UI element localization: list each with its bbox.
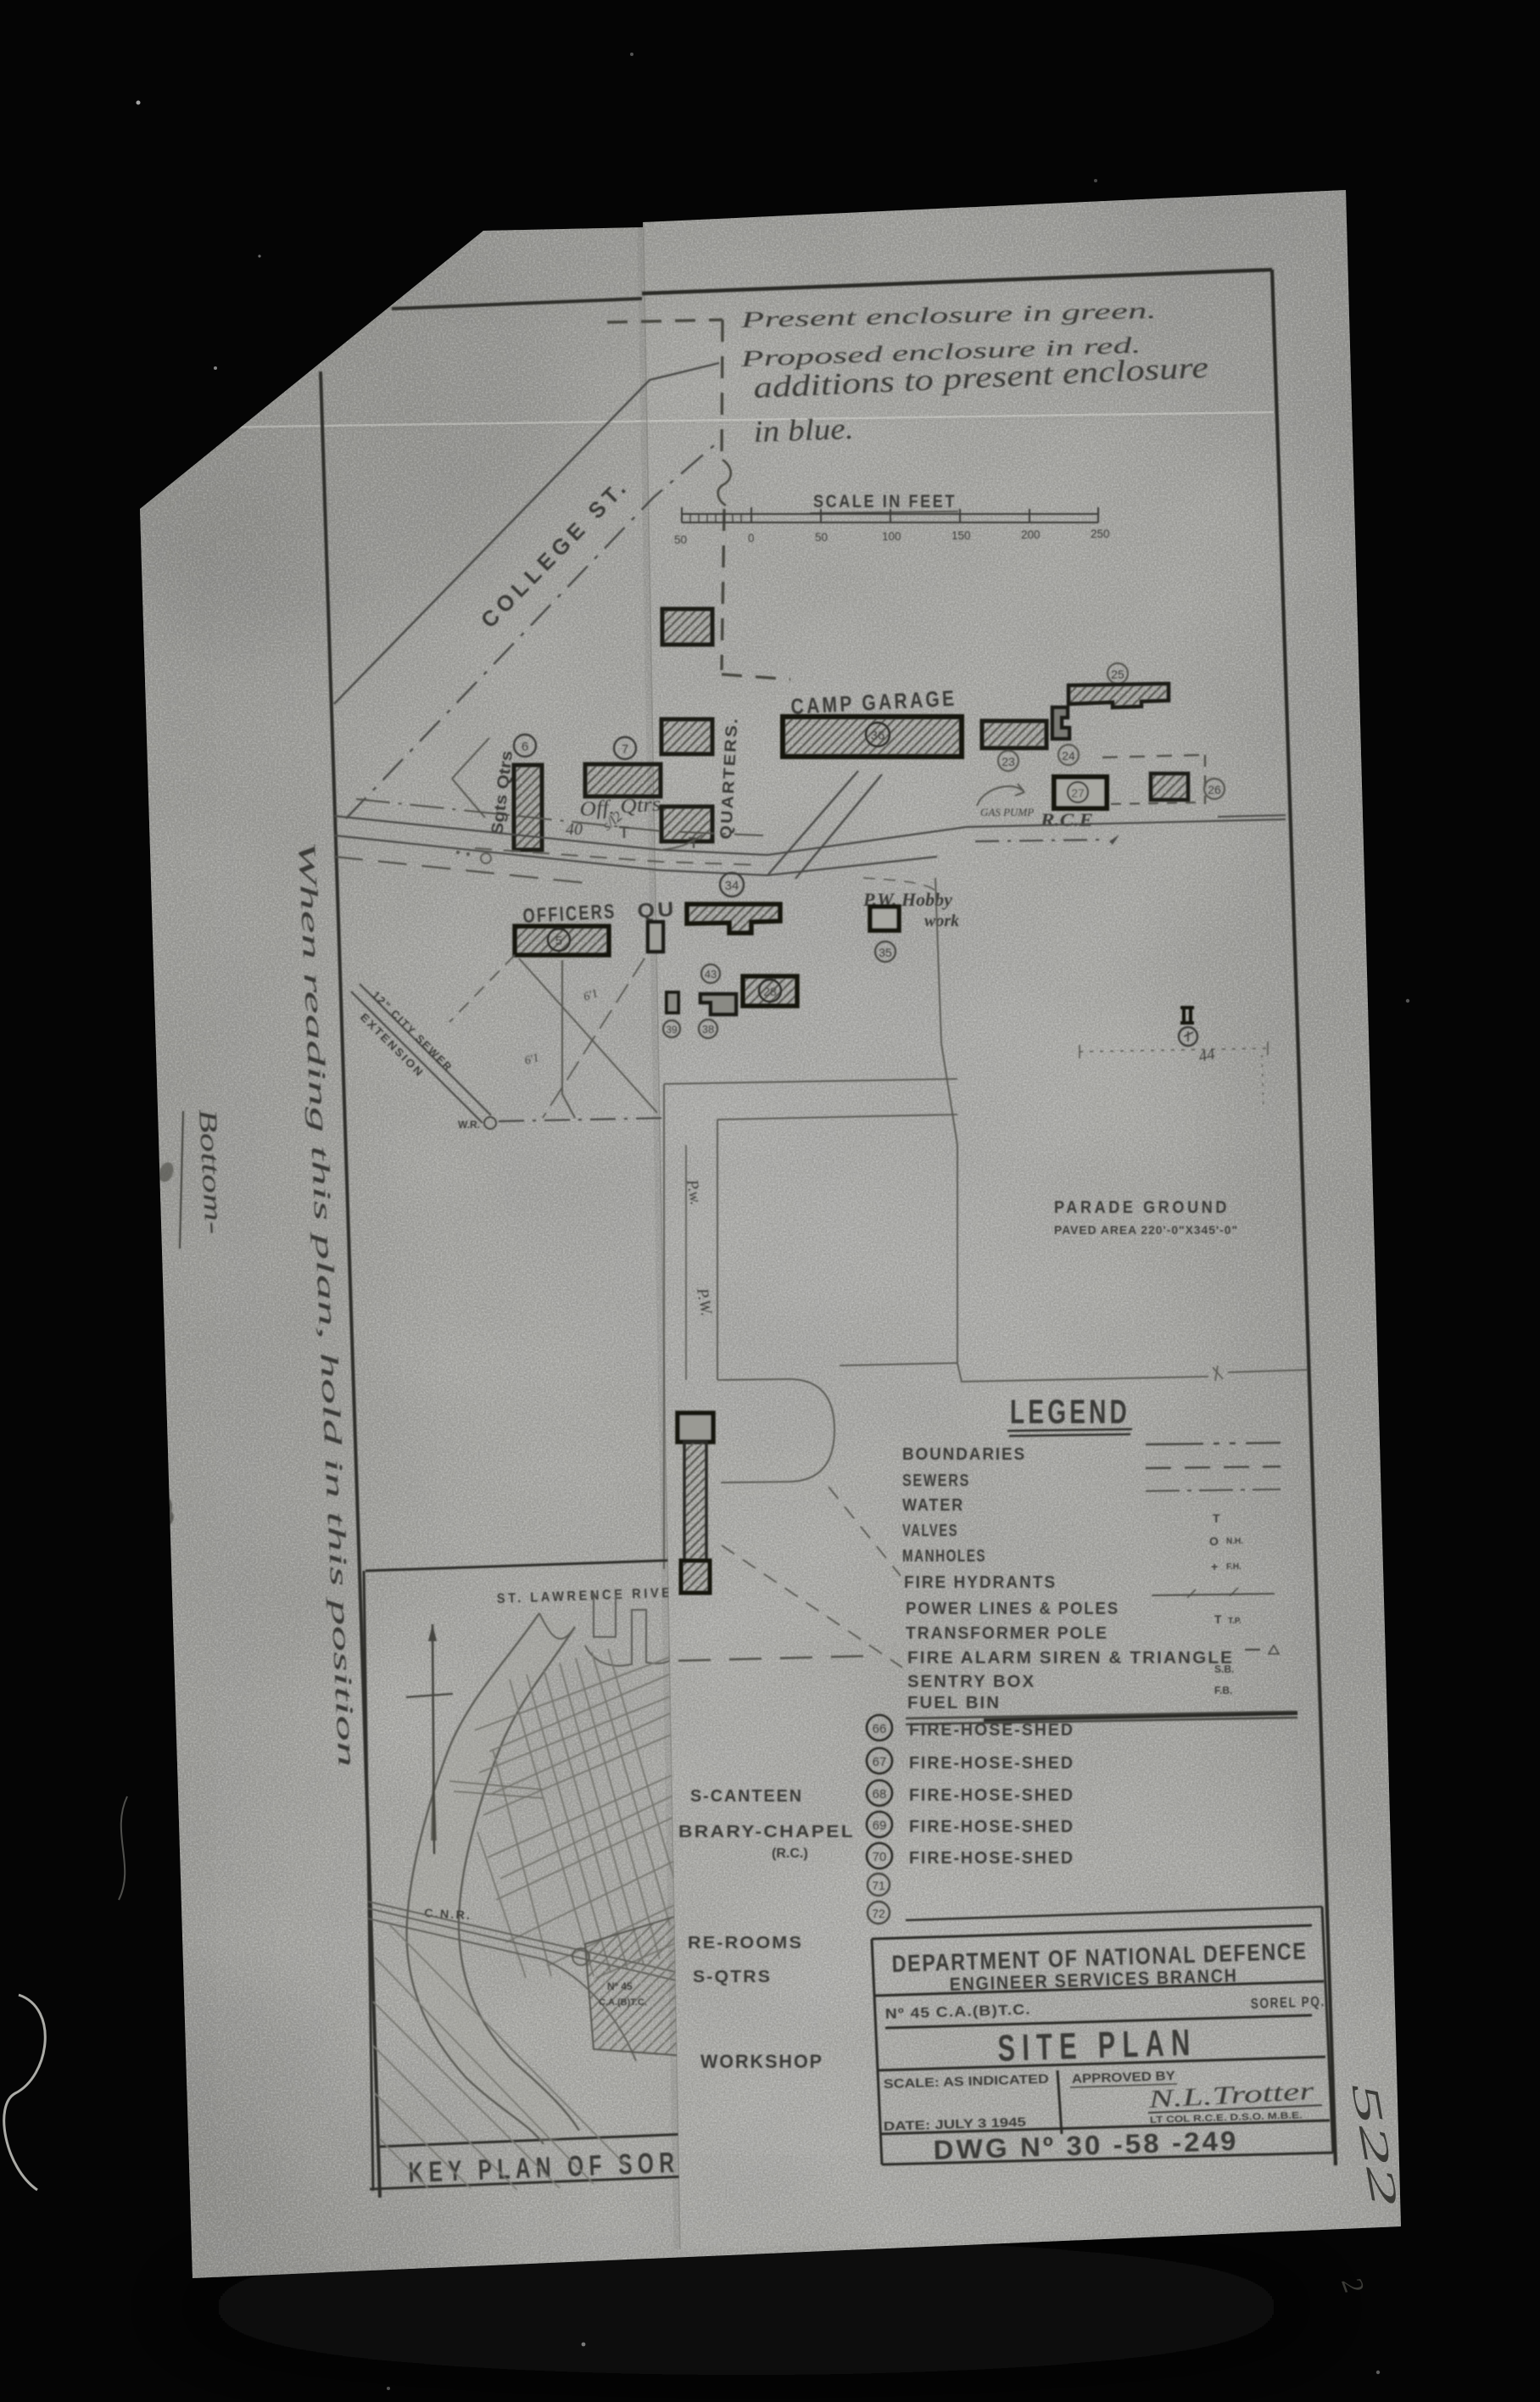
svg-text:50: 50 xyxy=(815,531,828,544)
svg-text:QU: QU xyxy=(637,898,677,923)
svg-text:T.P.: T.P. xyxy=(1228,1617,1241,1626)
svg-text:work: work xyxy=(924,912,959,930)
svg-text:POWER LINES & POLES: POWER LINES & POLES xyxy=(906,1600,1119,1618)
svg-text:69: 69 xyxy=(873,1818,887,1833)
svg-text:250: 250 xyxy=(1091,528,1110,540)
svg-text:SOREL PQ.: SOREL PQ. xyxy=(1251,1993,1326,2012)
svg-text:26: 26 xyxy=(1208,783,1221,796)
svg-text:N.H.: N.H. xyxy=(1226,1537,1243,1546)
svg-text:SCALE IN FEET: SCALE IN FEET xyxy=(813,492,957,511)
svg-text:BRARY-CHAPEL: BRARY-CHAPEL xyxy=(678,1823,855,1841)
svg-text:6: 6 xyxy=(522,740,528,754)
svg-text:FIRE-HOSE-SHED: FIRE-HOSE-SHED xyxy=(909,1754,1074,1773)
svg-text:68: 68 xyxy=(873,1787,887,1801)
svg-text:23: 23 xyxy=(1002,755,1015,768)
svg-text:200: 200 xyxy=(1021,528,1041,541)
svg-text:FIRE-HOSE-SHED: FIRE-HOSE-SHED xyxy=(909,1849,1074,1868)
svg-text:0: 0 xyxy=(748,532,755,545)
svg-text:S-CANTEEN: S-CANTEEN xyxy=(690,1787,803,1806)
svg-text:T: T xyxy=(1214,1612,1222,1626)
svg-text:O: O xyxy=(1209,1534,1219,1548)
svg-text:F.H.: F.H. xyxy=(1226,1562,1241,1572)
svg-text:TRANSFORMER POLE: TRANSFORMER POLE xyxy=(906,1624,1108,1643)
svg-text:27: 27 xyxy=(1071,786,1085,800)
svg-text:36: 36 xyxy=(871,729,885,743)
svg-text:SITE PLAN: SITE PLAN xyxy=(997,2022,1197,2070)
svg-text:34: 34 xyxy=(725,879,739,893)
svg-text:SEWERS: SEWERS xyxy=(902,1472,970,1490)
svg-text:in blue.: in blue. xyxy=(753,411,854,449)
svg-text:MANHOLES: MANHOLES xyxy=(902,1547,986,1566)
svg-text:T: T xyxy=(1213,1511,1220,1525)
svg-text:38: 38 xyxy=(702,1023,714,1036)
svg-text:WORKSHOP: WORKSHOP xyxy=(700,2051,823,2072)
svg-text:PARADE GROUND: PARADE GROUND xyxy=(1054,1198,1230,1217)
svg-text:R.C.E: R.C.E xyxy=(1040,809,1093,830)
svg-text:VALVES: VALVES xyxy=(902,1522,958,1540)
svg-text:W.R.: W.R. xyxy=(458,1119,480,1131)
svg-text:150: 150 xyxy=(951,529,971,542)
svg-text:66: 66 xyxy=(873,1722,887,1736)
svg-text:50: 50 xyxy=(674,533,687,546)
svg-text:72: 72 xyxy=(872,1907,885,1920)
svg-text:5: 5 xyxy=(555,934,562,948)
svg-text:GAS PUMP: GAS PUMP xyxy=(980,806,1034,818)
svg-text:S-QTRS: S-QTRS xyxy=(693,1968,772,1986)
svg-text:LEGEND: LEGEND xyxy=(1010,1394,1130,1431)
svg-text:FIRE ALARM SIREN & TRIANGLE: FIRE ALARM SIREN & TRIANGLE xyxy=(907,1649,1234,1667)
svg-text:+: + xyxy=(1211,1560,1218,1573)
svg-text:28: 28 xyxy=(763,985,777,998)
svg-text:25: 25 xyxy=(1111,668,1124,681)
svg-text:FIRE-HOSE-SHED: FIRE-HOSE-SHED xyxy=(909,1721,1074,1740)
svg-text:67: 67 xyxy=(873,1755,887,1769)
svg-text:70: 70 xyxy=(873,1850,887,1864)
svg-text:C.A.(B)T.C.: C.A.(B)T.C. xyxy=(599,1997,647,2008)
svg-text:43: 43 xyxy=(705,968,717,980)
svg-text:FIRE HYDRANTS: FIRE HYDRANTS xyxy=(904,1573,1057,1592)
svg-text:FIRE-HOSE-SHED: FIRE-HOSE-SHED xyxy=(909,1786,1074,1805)
svg-text:FUEL BIN: FUEL BIN xyxy=(907,1694,1001,1712)
svg-text:S.B.: S.B. xyxy=(1214,1663,1234,1675)
svg-text:100: 100 xyxy=(882,530,901,543)
svg-text:PAVED AREA 220'-0"X345'-0": PAVED AREA 220'-0"X345'-0" xyxy=(1054,1223,1238,1237)
svg-text:SENTRY BOX: SENTRY BOX xyxy=(907,1673,1035,1691)
svg-text:WATER: WATER xyxy=(902,1496,964,1515)
svg-text:OFFICERS: OFFICERS xyxy=(522,900,617,928)
svg-text:FIRE-HOSE-SHED: FIRE-HOSE-SHED xyxy=(909,1818,1074,1836)
svg-text:71: 71 xyxy=(872,1879,885,1892)
svg-text:RE-ROOMS: RE-ROOMS xyxy=(688,1934,803,1952)
svg-text:39: 39 xyxy=(666,1024,678,1036)
svg-text:BOUNDARIES: BOUNDARIES xyxy=(902,1445,1026,1464)
svg-text:24: 24 xyxy=(1062,749,1075,762)
svg-text:(R.C.): (R.C.) xyxy=(772,1846,808,1861)
svg-text:35: 35 xyxy=(879,946,892,959)
svg-text:F.B.: F.B. xyxy=(1214,1684,1232,1696)
svg-text:7: 7 xyxy=(622,742,628,757)
svg-text:Nº 45: Nº 45 xyxy=(607,1980,633,1992)
